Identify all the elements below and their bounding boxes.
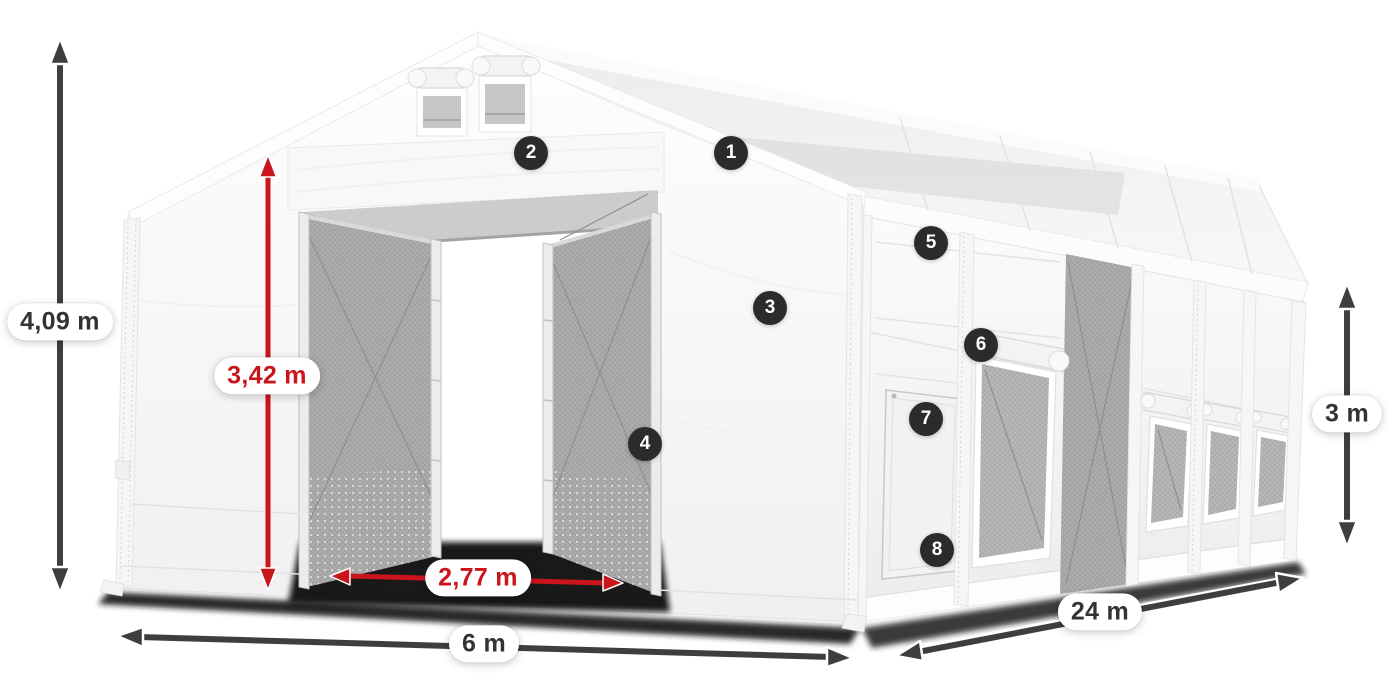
vent-window-right xyxy=(472,56,540,132)
dimension-label-entrance-height: 3,42 m xyxy=(214,357,320,394)
mesh-door-left xyxy=(299,212,441,589)
entrance xyxy=(288,190,670,612)
feature-badge-1: 1 xyxy=(714,136,748,170)
vent-window-left xyxy=(408,68,474,136)
dimension-label-width: 6 m xyxy=(449,625,519,662)
side-mesh-opening xyxy=(1060,254,1144,594)
feature-badge-3: 3 xyxy=(753,291,787,325)
dimension-label-side-height: 3 m xyxy=(1312,395,1382,432)
feature-badge-5: 5 xyxy=(914,226,948,260)
feature-badge-4: 4 xyxy=(628,427,662,461)
tent-illustration xyxy=(0,0,1400,700)
zipper-pull-icon xyxy=(892,394,897,399)
dimension-label-length: 24 m xyxy=(1058,593,1142,630)
feature-badge-8: 8 xyxy=(920,533,954,567)
feature-badge-7: 7 xyxy=(909,402,943,436)
feature-badge-6: 6 xyxy=(964,328,998,362)
mesh-door-right xyxy=(543,212,661,596)
dimension-label-total-height: 4,09 m xyxy=(7,303,113,340)
dimension-label-entrance-width: 2,77 m xyxy=(425,559,531,596)
feature-badge-2: 2 xyxy=(514,136,548,170)
tent-dimension-diagram: 4,09 m 3,42 m 2,77 m 6 m 24 m 3 m 1 2 3 … xyxy=(0,0,1400,700)
